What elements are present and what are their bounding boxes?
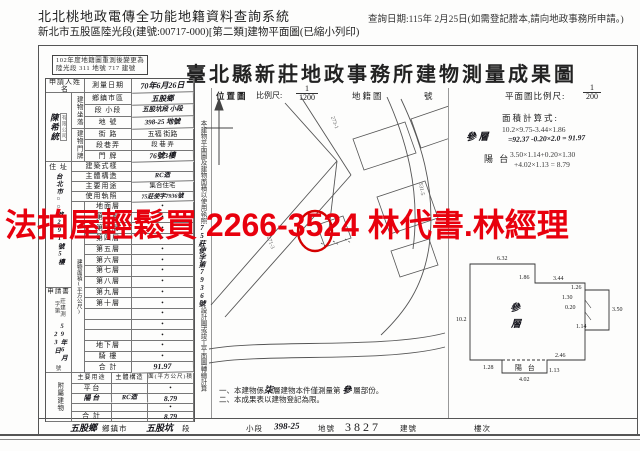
calc-balcony-label: 陽 台 xyxy=(484,152,510,165)
survey-date-label: 測量日期 xyxy=(85,79,132,93)
receipt-cell: 申請書 莊建測字第 59年6月23日 號 xyxy=(46,288,72,374)
dim-b1: 1.28 xyxy=(483,365,494,371)
footer-subsection-label: 小段 xyxy=(246,423,263,434)
floor-value: • xyxy=(132,245,194,256)
floor-plan-outline xyxy=(470,264,609,373)
dim-r1: 1.26 xyxy=(571,285,582,291)
form-border-top xyxy=(38,45,638,46)
annex-structure: RC造 xyxy=(112,394,148,403)
footer-township-label: 鄉鎮市 xyxy=(102,423,128,434)
footer-section-value: 五股坑 xyxy=(146,421,173,435)
annex-header-structure: 主體構造 xyxy=(112,373,148,383)
floor-plan-dimensions: 6.32 1.86 3.44 1.26 1.30 0.20 3.50 1.14 … xyxy=(456,256,623,383)
annex-area: 8.79 xyxy=(148,394,193,404)
floor-total-value: 91.97 xyxy=(132,362,194,374)
plan-scale-label: 平面圖比例尺: xyxy=(505,90,565,102)
location-map-sketch: 271-3 273-1 531-5 xyxy=(205,97,448,415)
calc-floor-label: 參 層 xyxy=(466,128,489,144)
calc-balcony-line2: +4.02×1.13 = 8.79 xyxy=(514,160,570,169)
receipt-number-prefix: 莊建測字第 xyxy=(53,296,64,319)
footer-building-number: 3827 xyxy=(345,420,381,435)
floor-label: 地下層 xyxy=(85,341,132,352)
dim-r4: 3.50 xyxy=(612,307,623,313)
floor-label: 合 計 xyxy=(85,362,132,373)
stamp-line2: 陸光段 311 地號 717 建號 xyxy=(56,65,144,73)
annex-use: 平 台 xyxy=(72,384,112,393)
annex-area: • xyxy=(148,384,193,393)
attr-label: 建築式樣 xyxy=(72,162,132,172)
dim-r5: 1.14 xyxy=(576,324,587,330)
floor-plan: 6.32 1.86 3.44 1.26 1.30 0.20 3.50 1.14 … xyxy=(455,245,638,423)
floor-value: • xyxy=(132,320,194,331)
footer-lot-value: 398-25 xyxy=(274,421,300,432)
application-label: 申請書 xyxy=(47,289,70,296)
doorplate-group-label: 建物門牌 xyxy=(72,129,85,162)
system-title: 北北桃地政電傳全功能地籍資料查詢系統 xyxy=(38,6,290,25)
form-border-bottom-2 xyxy=(0,439,640,440)
floor-label xyxy=(85,309,132,320)
location-row-label: 鄉鎮市區 xyxy=(85,93,132,105)
applicant-label: 申請人姓名 xyxy=(46,79,85,93)
annex-use: 陽 台 xyxy=(72,394,112,404)
footer-floor-label: 樓次 xyxy=(474,423,491,434)
area-calc-title: 面積計算式: xyxy=(502,112,559,124)
calc-floor-line2: =92.37 -0.20×2.0 = 91.97 xyxy=(508,133,585,144)
note1-hand-floor-no: 參 xyxy=(342,385,351,395)
dim-bottom-right: 2.46 xyxy=(555,353,566,359)
plan-scale-fraction: 1 200 xyxy=(583,84,601,102)
footer-strip: 五股鄉 鄉鎮市 五股坑 段 小段 398-25 地號 3827 建號 樓次 xyxy=(0,420,640,433)
floor-label: 第七層 xyxy=(85,266,132,277)
map-lot-label: 273-1 xyxy=(329,116,339,130)
floor-value: • xyxy=(132,266,194,277)
note-line-2: 二、本成果表以建物登記為限。 xyxy=(219,394,324,405)
doorplate-row-label: 街 路 xyxy=(85,129,132,140)
dim-left: 10.2 xyxy=(456,317,467,323)
calc-balcony-line1: 3.50×1.14+0.20×1.30 xyxy=(510,150,575,159)
floor-value: • xyxy=(132,341,194,352)
footer-township-value: 五股鄉 xyxy=(70,421,97,435)
doorplate-row-label: 門 牌 xyxy=(85,151,132,162)
note1-post: 層部份。 xyxy=(353,386,383,395)
floor-value: • xyxy=(132,255,194,266)
annex-group-label: 附屬建物 xyxy=(46,373,72,422)
receipt-date: 59年6月23日 xyxy=(51,320,65,365)
dim-r2: 1.30 xyxy=(562,295,573,301)
footer-building-label: 建號 xyxy=(400,423,417,434)
dim-notch-w: 3.44 xyxy=(553,276,564,282)
dim-top: 6.32 xyxy=(497,256,508,262)
floor-value: • xyxy=(132,288,194,299)
floor-value: • xyxy=(132,277,194,288)
doorplate-row-value: 76號3樓 xyxy=(132,150,194,163)
floor-value: • xyxy=(132,298,194,309)
annex-header-use: 主要用途 xyxy=(72,373,112,383)
plan-floor-label-1: 參 xyxy=(510,302,521,314)
plan-scale-den: 200 xyxy=(583,92,601,101)
stamp-line1: 102年度地籍圖重測後變更為 xyxy=(56,57,144,65)
annex-structure xyxy=(112,404,148,411)
plan-balcony-label: 陽 台 xyxy=(515,363,537,372)
doorplate-row-value: 五福 街路 xyxy=(132,129,194,140)
dim-r3: 0.20 xyxy=(565,305,576,311)
realtor-watermark: 法拍屋輕鬆買 2266-3524 林代書.林經理 xyxy=(5,200,569,246)
renumber-stamp: 102年度地籍圖重測後變更為 陸光段 311 地號 717 建號 xyxy=(52,55,148,75)
location-row-label: 地 號 xyxy=(85,117,132,129)
annex-header-area: 面(平方公尺)積 xyxy=(148,373,193,383)
floor-label: 第九層 xyxy=(85,288,132,299)
location-row-label: 段 小段 xyxy=(85,105,132,117)
floor-label xyxy=(85,330,132,341)
footer-section-label: 段 xyxy=(182,423,190,434)
registry-printout-page: 北北桃地政電傳全功能地籍資料查詢系統 新北市五股區陸光段(建號:00717-00… xyxy=(0,0,640,451)
form-border-bottom-1 xyxy=(0,434,640,436)
building-info-table: 申請人姓名 測量日期 70年6月26日 陳希統 有限公司 建物坐落 鄉鎮市區 五… xyxy=(45,78,195,422)
document-subtitle: 新北市五股區陸光段(建號:00717-000)[第二類]建物平面圖(已縮小列印) xyxy=(38,24,359,39)
plan-scale-num: 1 xyxy=(590,84,594,92)
map-lot-label: 531-5 xyxy=(417,182,425,196)
annex-area: • xyxy=(148,404,193,411)
calc-floor-line1: 10.2×9.75-3.44×1.86 xyxy=(502,125,565,134)
doorplate-row-value: 段 巷 弄 xyxy=(132,140,194,151)
form-title: 臺北縣新莊地政事務所建物測量成果圖 xyxy=(186,58,577,87)
floor-value: • xyxy=(132,309,194,320)
dim-notch-h: 1.86 xyxy=(519,275,530,281)
map-scale-num: 1 xyxy=(305,85,309,93)
applicant-name-cell: 陳希統 有限公司 xyxy=(46,93,72,162)
floor-label: 第五層 xyxy=(85,245,132,256)
right-column-divider xyxy=(448,88,449,418)
annex-use xyxy=(72,404,112,411)
floor-label: 第六層 xyxy=(85,255,132,266)
dim-balcony-w: 4.02 xyxy=(519,377,530,383)
applicant-seal-stamp: 有限公司 xyxy=(60,113,67,141)
attr-label: 主要用途 xyxy=(72,182,132,192)
footer-lot-label: 地號 xyxy=(318,423,335,434)
doorplate-row-label: 段巷弄 xyxy=(85,140,132,151)
annex-structure xyxy=(112,384,148,393)
north-arrow xyxy=(205,99,233,165)
query-date: 查詢日期:115年 2月25日(如需登記謄本,請向地政事務所申請。) xyxy=(368,11,624,25)
floor-label: 第十層 xyxy=(85,298,132,309)
floor-value: • xyxy=(132,330,194,341)
attr-value: RC造 xyxy=(132,171,194,183)
location-group-label: 建物坐落 xyxy=(72,93,85,129)
receipt-number-suffix: 號 xyxy=(56,367,62,373)
floor-label: 第八層 xyxy=(85,277,132,288)
floor-label: 騎 樓 xyxy=(85,352,132,363)
address-label: 住 址 xyxy=(49,164,68,171)
plan-floor-label-2: 層 xyxy=(510,318,523,330)
applicant-name: 陳希統 xyxy=(50,113,59,142)
location-row-value: 398-25 地號 xyxy=(132,116,194,130)
floor-label xyxy=(85,320,132,331)
dim-b2: 1.13 xyxy=(549,368,560,374)
attr-label: 主體構造 xyxy=(72,172,132,182)
